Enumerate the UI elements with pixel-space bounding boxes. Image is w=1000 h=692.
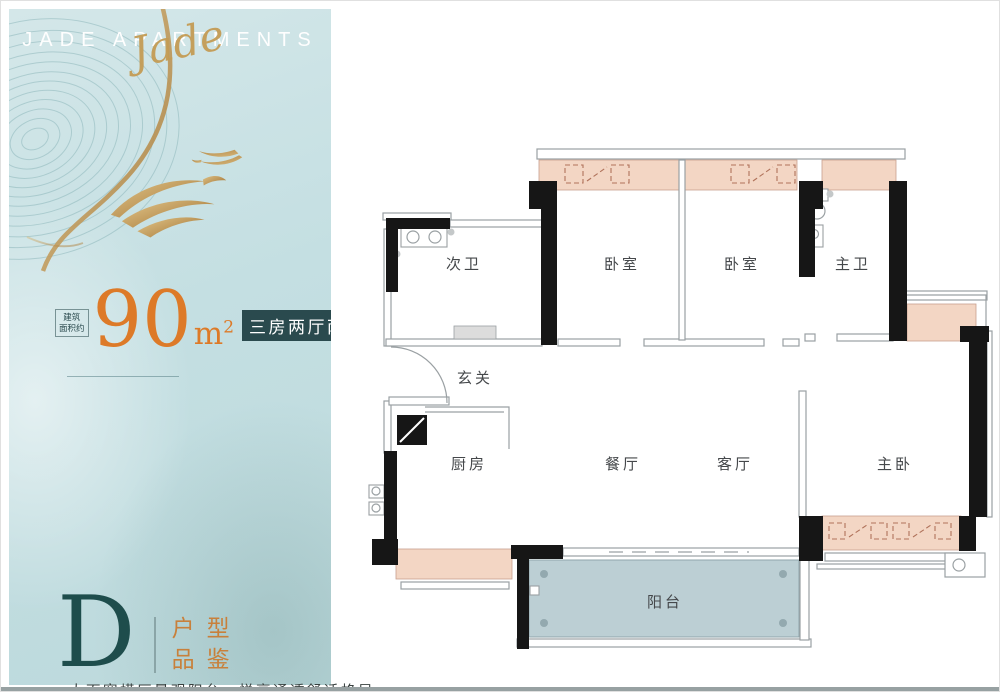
area-unit: m2 xyxy=(194,319,234,350)
bath2-vanity xyxy=(401,227,447,247)
balcony-rail-right xyxy=(800,560,809,640)
room-label-bath2: 次卫 xyxy=(446,256,482,273)
gold-curve-echo xyxy=(27,237,83,246)
entry-door-arc xyxy=(391,347,447,403)
bay-strip-masterbath xyxy=(822,160,896,190)
area-prefix: 建筑 面积约 xyxy=(55,309,89,337)
balcony-drain xyxy=(540,570,548,578)
room-label-bedroom1: 卧室 xyxy=(604,256,640,273)
wall-bedroom2-bottom-end xyxy=(783,339,799,346)
swallow-icon xyxy=(108,174,233,242)
area-underline xyxy=(67,376,179,377)
wall-kitchen-top xyxy=(389,397,449,405)
kitchen-counter xyxy=(425,407,509,449)
balcony-fixture xyxy=(530,586,539,595)
room-label-kitchen: 厨房 xyxy=(451,456,487,473)
swallow-icon xyxy=(191,145,242,167)
room-label-dining: 餐厅 xyxy=(605,456,641,473)
room-label-bedroom2: 卧室 xyxy=(724,256,760,273)
area-prefix-line2: 面积约 xyxy=(59,323,85,334)
room-label-master: 主卧 xyxy=(877,456,913,473)
room-label-living: 客厅 xyxy=(717,456,753,473)
footer-caption: 大面宽横厅景观阳台，悦享通透舒适格局 xyxy=(69,680,375,692)
balcony-rail-bottom xyxy=(517,639,811,647)
room-label-balcony: 阳台 xyxy=(647,594,683,611)
fixture-knob xyxy=(448,229,455,236)
balcony-drain xyxy=(540,619,548,627)
floorplan-drawing: 次卫 卧室 卧室 主卫 玄关 厨房 餐厅 客厅 主卧 阳台 xyxy=(359,133,994,658)
fixture-knob xyxy=(827,191,834,198)
wall-right-outer xyxy=(987,331,992,517)
balcony-drain xyxy=(779,570,787,578)
room-label-foyer: 玄关 xyxy=(457,370,493,387)
window-band-top xyxy=(537,149,905,159)
floorplan: 次卫 卧室 卧室 主卫 玄关 厨房 餐厅 客厅 主卧 阳台 xyxy=(359,133,994,663)
room-label-masterbath: 主卫 xyxy=(835,256,871,273)
balcony-drain xyxy=(779,619,787,627)
window-bath2 xyxy=(450,220,542,227)
area-block: 建筑 面积约 90 m2 三房两厅两卫 xyxy=(55,289,331,353)
area-value: 90 xyxy=(93,289,192,353)
hall-cabinet xyxy=(454,326,496,339)
wall-left-mid xyxy=(384,401,391,453)
window-master-bottom xyxy=(825,553,958,561)
unit-type-letter: D xyxy=(57,589,136,677)
area-prefix-line1: 建筑 xyxy=(59,312,85,323)
wall-masterbath-bottom-b xyxy=(837,334,893,341)
unit-type-divider xyxy=(154,617,156,673)
wall-bedroom1-bottom xyxy=(558,339,620,346)
unit-type-block: D 户型 品鉴 xyxy=(57,589,242,677)
wall-bedroom2-bottom xyxy=(644,339,764,346)
floorplan-poster: JADE APARTMENTS Jade 建筑 面积约 90 m2 三房两厅两卫… xyxy=(0,0,1000,692)
unit-type-label: 户型 品鉴 xyxy=(172,613,242,677)
closet-strip-master xyxy=(822,516,961,550)
wall-bedroom-divider xyxy=(679,160,685,340)
wall-masterbath-bottom-a xyxy=(805,334,815,341)
layout-badge: 三房两厅两卫 xyxy=(242,310,331,341)
wall-bath2-bottom xyxy=(386,339,542,346)
bay-window-kitchen xyxy=(396,549,512,579)
brand-panel: JADE APARTMENTS Jade 建筑 面积约 90 m2 三房两厅两卫… xyxy=(9,9,331,685)
wall-master-left xyxy=(799,391,806,517)
window-kitchen-bottom xyxy=(401,582,509,589)
